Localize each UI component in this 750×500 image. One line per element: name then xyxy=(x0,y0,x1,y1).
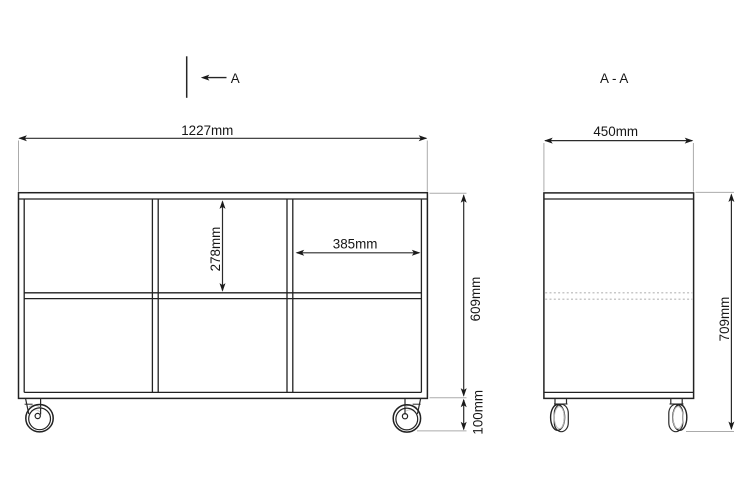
svg-text:450mm: 450mm xyxy=(593,124,638,139)
svg-text:A: A xyxy=(231,71,240,86)
svg-text:609mm: 609mm xyxy=(468,277,483,322)
svg-text:100mm: 100mm xyxy=(470,390,485,435)
svg-text:709mm: 709mm xyxy=(717,297,732,342)
svg-text:1227mm: 1227mm xyxy=(181,123,233,138)
svg-text:385mm: 385mm xyxy=(333,237,378,252)
svg-text:278mm: 278mm xyxy=(208,227,223,272)
svg-text:A - A: A - A xyxy=(600,71,628,86)
